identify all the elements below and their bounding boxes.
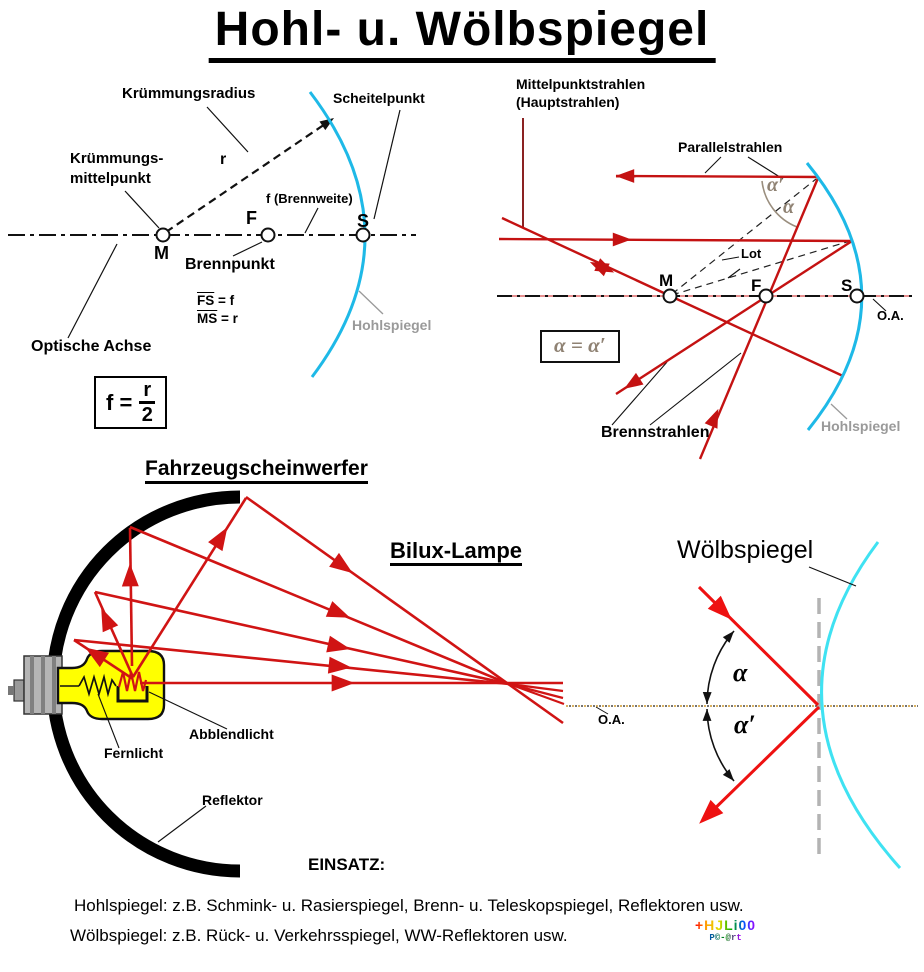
bilux-lampe-title: Bilux-Lampe [390,538,522,566]
optical-axis-abbrev: O.A. [877,309,904,324]
logo-line2: P©-@rt [695,933,756,943]
alpha-label: α [733,658,747,688]
reflektor-label: Reflektor [202,792,263,808]
kruemmungsmittelpunkt-line1: Krümmungs- [70,149,163,169]
parallelstrahlen-label: Parallelstrahlen [678,139,782,155]
radius-r-label: r [220,151,226,169]
mittelpunktstrahlen-line1: Mittelpunktstrahlen [516,75,645,93]
optical-axis-abbrev: O.A. [598,713,625,728]
formula-fraction: r 2 [139,380,155,425]
light-rays [499,171,852,459]
ms-overline: MS [197,311,217,326]
bulb-socket [8,656,62,714]
point-f-label: F [246,208,257,229]
fernlicht-label: Fernlicht [104,745,163,761]
kruemmungsmittelpunkt-line2: mittelpunkt [70,169,163,189]
hohlspiegel-leader [831,404,847,419]
ms-rest: = r [217,311,238,326]
fs-rest: = f [214,293,234,308]
lot-label: Lot [741,247,761,262]
scheitelpunkt-label: Scheitelpunkt [333,90,425,106]
abblendlicht-label: Abblendlicht [189,726,274,742]
point-m-label: M [154,243,169,264]
alpha-prime-label: α′ [734,710,756,740]
hohlspiegel-label: Hohlspiegel [821,418,900,434]
diagram-canvas [0,0,924,972]
optische-achse-label: Optische Achse [31,338,151,356]
page-title: Hohl- u. Wölbspiegel [209,2,716,63]
brennstrahlen-label: Brennstrahlen [601,424,709,442]
formula-denominator: 2 [142,405,153,425]
convex-mirror-curve [822,542,900,868]
point-s-label: S [357,211,369,232]
artist-logo: +HJLi00 P©-@rt [695,917,756,943]
point-s-label: S [841,276,852,296]
convex-mirror-diagram [566,542,918,868]
point-f-label: F [751,276,761,296]
ms-equation: MS = r [197,311,238,327]
alpha-label: α [783,196,794,219]
fs-overline: FS [197,293,214,308]
brennweite-label: f (Brennweite) [266,192,353,207]
woelbspiegel-usage-text: Wölbspiegel: z.B. Rück- u. Verkehrsspieg… [70,926,568,946]
kruemmungsmittelpunkt-label: Krümmungs- mittelpunkt [70,149,163,189]
focal-length-formula: f = r 2 [94,376,167,429]
kruemmungsradius-label: Krümmungsradius [122,85,255,102]
logo-line1: +HJLi00 [695,917,756,933]
mittelpunktstrahlen-label: Mittelpunktstrahlen (Hauptstrahlen) [516,75,645,111]
title-leader [809,567,856,586]
lot-leader-ticks [722,257,740,278]
reflection-law-box: α = α′ [540,330,620,363]
mirror-physics-poster: Hohl- u. Wölbspiegel Krümmungsradius Sch… [0,0,924,972]
hohlspiegel-label: Hohlspiegel [352,317,431,333]
fahrzeugscheinwerfer-title: Fahrzeugscheinwerfer [145,457,368,484]
concave-geometry-diagram [8,92,416,377]
fs-equation: FS = f [197,293,234,309]
hohlspiegel-usage-text: Hohlspiegel: z.B. Schmink- u. Rasierspie… [74,896,744,916]
brennpunkt-label: Brennpunkt [185,256,275,274]
formula-numerator: r [143,380,151,400]
einsatz-heading: EINSATZ: [308,855,385,875]
mittelpunktstrahlen-line2: (Hauptstrahlen) [516,93,645,111]
hohlspiegel-leader [359,291,383,314]
alpha-prime-label: α′ [767,174,784,197]
point-m-label: M [659,271,673,291]
woelbspiegel-title: Wölbspiegel [677,536,813,565]
formula-lhs: f = [106,390,132,416]
